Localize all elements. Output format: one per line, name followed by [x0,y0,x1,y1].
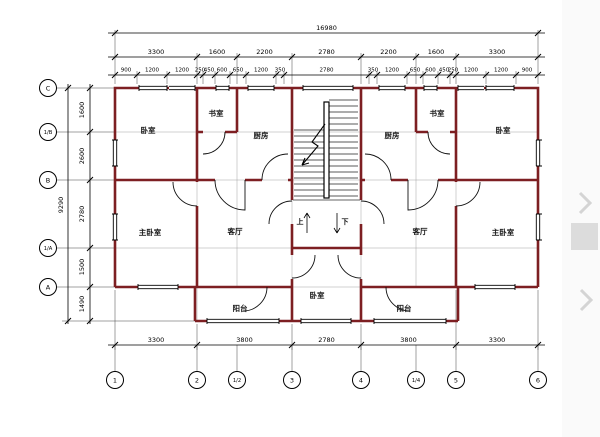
axis-bubble-label: 2 [195,377,199,385]
room-label-master-left: 主卧室 [139,227,162,237]
dim-label: 1600 [209,48,226,56]
stair-down-label: 下 [342,218,349,226]
axis-bubble-label: 1/A [44,246,53,252]
dim-label: 2780 [318,336,335,344]
dimension-lines [68,33,545,345]
axis-bubble-label: B [46,177,50,185]
floor-plan-drawing: 16980 3300 1600 2200 2780 2200 1600 3300… [0,0,600,437]
axis-bubble-label: C [46,85,51,93]
room-label-bedroom-right: 卧室 [496,125,511,135]
dim-label: 2780 [318,48,335,56]
dim-label: 1200 [175,68,189,74]
floor-plan-page: 16980 3300 1600 2200 2780 2200 1600 3300… [0,0,600,437]
room-label-bedroom-left: 卧室 [141,125,156,135]
dim-label: 16980 [316,24,337,32]
room-label-living-right: 客厅 [412,226,428,236]
room-label-balcony-right: 阳台 [397,303,412,313]
dim-label: 1200 [145,68,159,74]
axis-bubble-label: 3 [290,377,294,385]
dim-label: 3800 [236,336,253,344]
stair-up-label: 上 [297,217,304,226]
room-label-study-left: 书室 [209,108,224,118]
axis-bubble-label: 1/4 [412,378,421,384]
dim-label: 650 [410,68,421,74]
dim-label: 1500 [78,259,86,276]
room-label-living-left: 客厅 [227,226,243,236]
axis-bubble-label: 1/B [44,130,53,136]
dim-label: 2600 [78,148,86,165]
dim-label: 1200 [254,68,268,74]
dim-label: 1200 [385,68,399,74]
axis-bubble-label: 5 [454,377,458,385]
dim-label: 2200 [256,48,273,56]
room-label-kitchen-right: 厨房 [385,130,400,140]
axis-bubble-label: A [46,284,51,292]
axis-bubble-label: 1 [113,377,117,385]
dim-label: 600 [425,68,436,74]
dim-label: 1490 [78,296,86,313]
axis-bubble-label: 6 [536,377,540,385]
carousel-thumb[interactable] [571,223,598,250]
dim-label: 3300 [489,336,506,344]
axis-bubble-label: 4 [359,377,363,385]
dim-label: 9290 [57,197,65,214]
dim-label: 350 [275,68,286,74]
dim-label: 1600 [428,48,445,56]
room-label-bedroom-center: 卧室 [310,290,325,300]
room-label-balcony-left: 阳台 [233,303,248,313]
page-margin [562,0,600,437]
dim-label: 600 [217,68,228,74]
dim-label: 1200 [464,68,478,74]
dim-label: 3800 [400,336,417,344]
dim-label: 3300 [148,336,165,344]
dim-label: 250 [448,68,459,74]
dim-label: 1600 [78,102,86,119]
dim-label: 3300 [148,48,165,56]
staircase [293,100,360,233]
dim-label: 3300 [489,48,506,56]
dim-label: 2780 [320,68,334,74]
dim-label: 900 [522,68,533,74]
dim-label: 2780 [78,206,86,223]
dim-label: 450 [204,68,215,74]
room-label-kitchen-left: 厨房 [254,130,269,140]
stair-direction-arrows [304,213,340,233]
dim-label: 650 [233,68,244,74]
dim-label: 900 [121,68,132,74]
axis-bubble-label: 1/2 [233,378,241,384]
dim-label: 1200 [494,68,508,74]
dim-label: 2200 [380,48,397,56]
room-label-master-right: 主卧室 [492,227,515,237]
dim-label: 350 [368,68,379,74]
room-label-study-right: 书室 [430,108,445,118]
dimension-ticks [65,30,541,348]
stair-handrail [324,102,329,198]
